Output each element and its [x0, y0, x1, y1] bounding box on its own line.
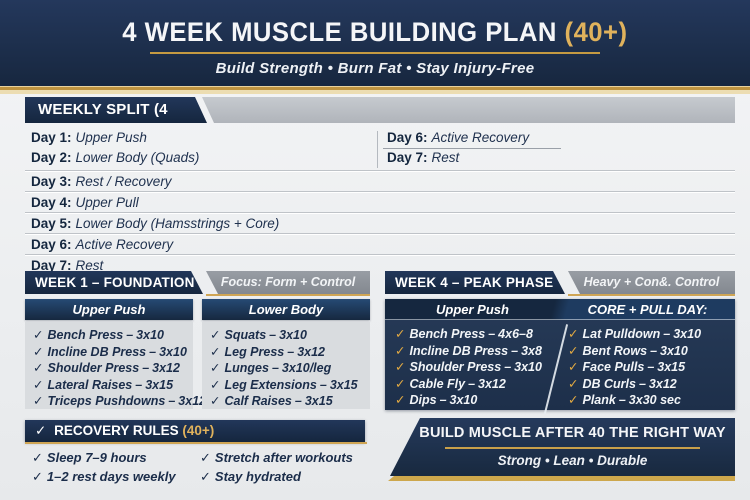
- gold-divider: [206, 294, 370, 296]
- exercise-item: ✓Calf Raises–3x15: [210, 393, 370, 410]
- week4-banner: WEEK 4 – PEAK PHASE: [385, 271, 565, 294]
- check-icon: ✓: [35, 423, 46, 438]
- exercise-item: ✓Bent Rows–3x10: [568, 343, 701, 360]
- weekly-split-banner-extension: [202, 97, 735, 123]
- check-icon: ✓: [395, 344, 405, 358]
- recovery-item: ✓Sleep 7–9 hours: [32, 450, 176, 469]
- week1-upper-push-list: ✓Bench Press–3x10 ✓Incline DB Press–3x10…: [25, 322, 193, 409]
- week1-banner: WEEK 1 – FOUNDATION: [25, 271, 203, 294]
- check-icon: ✓: [33, 378, 43, 392]
- check-icon: ✓: [33, 345, 43, 359]
- day-row: Day 4:Upper Pull: [31, 195, 139, 210]
- row-divider: [25, 191, 735, 193]
- week1-focus-label: Focus: Form + Control: [206, 271, 370, 294]
- check-icon: ✓: [33, 394, 43, 408]
- check-icon: ✓: [200, 450, 211, 465]
- check-icon: ✓: [210, 328, 220, 342]
- exercise-item: ✓Shoulder Press–3x10: [395, 359, 542, 376]
- header-subtitle: Build Strength • Burn Fat • Stay Injury-…: [0, 60, 750, 77]
- recovery-rules-banner: ✓ RECOVERY RULES (40+): [25, 420, 365, 442]
- check-icon: ✓: [568, 327, 578, 341]
- exercise-item: ✓Dips–3x10: [395, 392, 542, 409]
- gold-divider: [568, 294, 735, 296]
- exercise-item: ✓Lat Pulldown–3x10: [568, 326, 701, 343]
- exercise-item: ✓Face Pulls–3x15: [568, 359, 701, 376]
- week4-upper-push-header: Upper Push: [385, 299, 560, 319]
- week1-lower-body-header: Lower Body: [202, 299, 370, 320]
- check-icon: ✓: [210, 394, 220, 408]
- cta-subtitle: Strong • Lean • Durable: [410, 453, 735, 468]
- check-icon: ✓: [395, 393, 405, 407]
- check-icon: ✓: [568, 393, 578, 407]
- day-row: Day 7:Rest: [31, 258, 103, 273]
- check-icon: ✓: [200, 469, 211, 484]
- check-icon: ✓: [32, 469, 43, 484]
- exercise-item: ✓Cable Fly–3x12: [395, 376, 542, 393]
- check-icon: ✓: [33, 361, 43, 375]
- exercise-item: ✓Lunges–3x10/leg: [210, 360, 370, 377]
- weekly-split-table: Day 1:Upper Push Day 2:Lower Body (Quads…: [25, 129, 735, 265]
- exercise-item: ✓Shoulder Press–3x12: [33, 360, 193, 377]
- title-age-badge: (40+): [565, 17, 628, 47]
- week4-panel: Upper Push CORE + PULL DAY: ✓Bench Press…: [385, 299, 735, 410]
- week1-upper-push-header: Upper Push: [25, 299, 193, 320]
- day-row: Day 2:Lower Body (Quads): [31, 150, 199, 165]
- check-icon: ✓: [210, 378, 220, 392]
- week4-core-pull-list: ✓Lat Pulldown–3x10 ✓Bent Rows–3x10 ✓Face…: [568, 326, 701, 409]
- recovery-item: ✓1–2 rest days weekly: [32, 469, 176, 488]
- exercise-item: ✓Leg Press–3x12: [210, 344, 370, 361]
- gold-divider: [25, 442, 367, 444]
- cta-gold-bar: [388, 476, 735, 481]
- exercise-item: ✓Incline DB Press–3x10: [33, 344, 193, 361]
- check-icon: ✓: [210, 345, 220, 359]
- recovery-item: ✓Stretch after workouts: [200, 450, 353, 469]
- row-divider: [25, 233, 735, 235]
- exercise-item: ✓Triceps Pushdowns–3x12: [33, 393, 193, 410]
- week4-core-pull-header: CORE + PULL DAY:: [560, 299, 735, 319]
- check-icon: ✓: [395, 360, 405, 374]
- exercise-item: ✓Leg Extensions–3x15: [210, 377, 370, 394]
- recovery-age-badge: (40+): [182, 423, 214, 438]
- title-underline: [150, 52, 600, 54]
- page-title: 4 WEEK MUSCLE BUILDING PLAN (40+): [0, 17, 750, 48]
- exercise-item: ✓Bench Press–4x6–8: [395, 326, 542, 343]
- day-row: Day 6:Active Recovery: [31, 237, 173, 252]
- cta-title: BUILD MUSCLE AFTER 40 THE RIGHT WAY: [410, 425, 735, 441]
- row-divider: [383, 148, 561, 149]
- week1-lower-body-list: ✓Squats–3x10 ✓Leg Press–3x12 ✓Lunges–3x1…: [202, 322, 370, 409]
- exercise-item: ✓Bench Press–3x10: [33, 327, 193, 344]
- week4-focus-label: Heavy + Con&. Control: [568, 271, 735, 294]
- check-icon: ✓: [395, 377, 405, 391]
- check-icon: ✓: [33, 328, 43, 342]
- cta-underline: [445, 447, 700, 449]
- exercise-item: ✓Plank–3x30 sec: [568, 392, 701, 409]
- check-icon: ✓: [568, 360, 578, 374]
- muscle-building-plan-poster: 4 WEEK MUSCLE BUILDING PLAN (40+) Build …: [0, 0, 750, 500]
- day-row: Day 7:Rest: [387, 150, 459, 165]
- check-icon: ✓: [568, 377, 578, 391]
- exercise-item: ✓Incline DB Press–3x8: [395, 343, 542, 360]
- week4-upper-push-list: ✓Bench Press–4x6–8 ✓Incline DB Press–3x8…: [395, 326, 542, 409]
- day-row: Day 6:Active Recovery: [387, 130, 529, 145]
- check-icon: ✓: [568, 344, 578, 358]
- week4-column-headers: Upper Push CORE + PULL DAY:: [385, 299, 735, 320]
- day-row: Day 3:Rest / Recovery: [31, 174, 172, 189]
- row-divider: [25, 212, 735, 214]
- recovery-item: ✓Stay hydrated: [200, 469, 353, 488]
- exercise-item: ✓Lateral Raises–3x15: [33, 377, 193, 394]
- row-divider: [25, 170, 735, 172]
- recovery-list-col2: ✓Stretch after workouts ✓Stay hydrated: [200, 450, 353, 488]
- cta-box: BUILD MUSCLE AFTER 40 THE RIGHT WAY Stro…: [390, 418, 735, 476]
- check-icon: ✓: [32, 450, 43, 465]
- header: 4 WEEK MUSCLE BUILDING PLAN (40+) Build …: [0, 0, 750, 86]
- column-divider: [377, 131, 378, 168]
- day-row: Day 5:Lower Body (Hamsstrings + Core): [31, 216, 279, 231]
- check-icon: ✓: [210, 361, 220, 375]
- diagonal-divider: [544, 324, 568, 414]
- check-icon: ✓: [395, 327, 405, 341]
- row-divider: [25, 254, 735, 256]
- day-row: Day 1:Upper Push: [31, 130, 147, 145]
- recovery-list-col1: ✓Sleep 7–9 hours ✓1–2 rest days weekly: [32, 450, 176, 488]
- header-gold-divider: [0, 86, 750, 94]
- exercise-item: ✓Squats–3x10: [210, 327, 370, 344]
- exercise-item: ✓DB Curls–3x12: [568, 376, 701, 393]
- weekly-split-banner: WEEKLY SPLIT (4 DAYS): [25, 97, 207, 123]
